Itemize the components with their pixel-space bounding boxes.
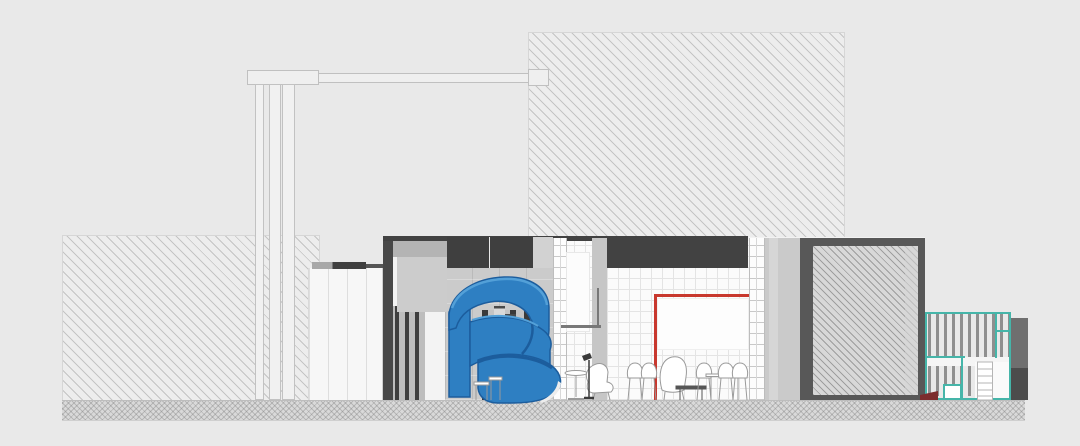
section-drawing-canvas xyxy=(0,0,1080,446)
pavilion-ladder xyxy=(978,362,993,400)
overlay-drawing xyxy=(0,0,1080,446)
lounge-chair-1 xyxy=(586,364,613,393)
coffee-table xyxy=(676,386,706,400)
pedestal-table xyxy=(565,371,587,400)
side-chair-2 xyxy=(641,363,656,378)
side-chair-1 xyxy=(627,363,642,378)
dining-chair-3 xyxy=(732,363,747,378)
dining-chair-2 xyxy=(718,363,733,378)
